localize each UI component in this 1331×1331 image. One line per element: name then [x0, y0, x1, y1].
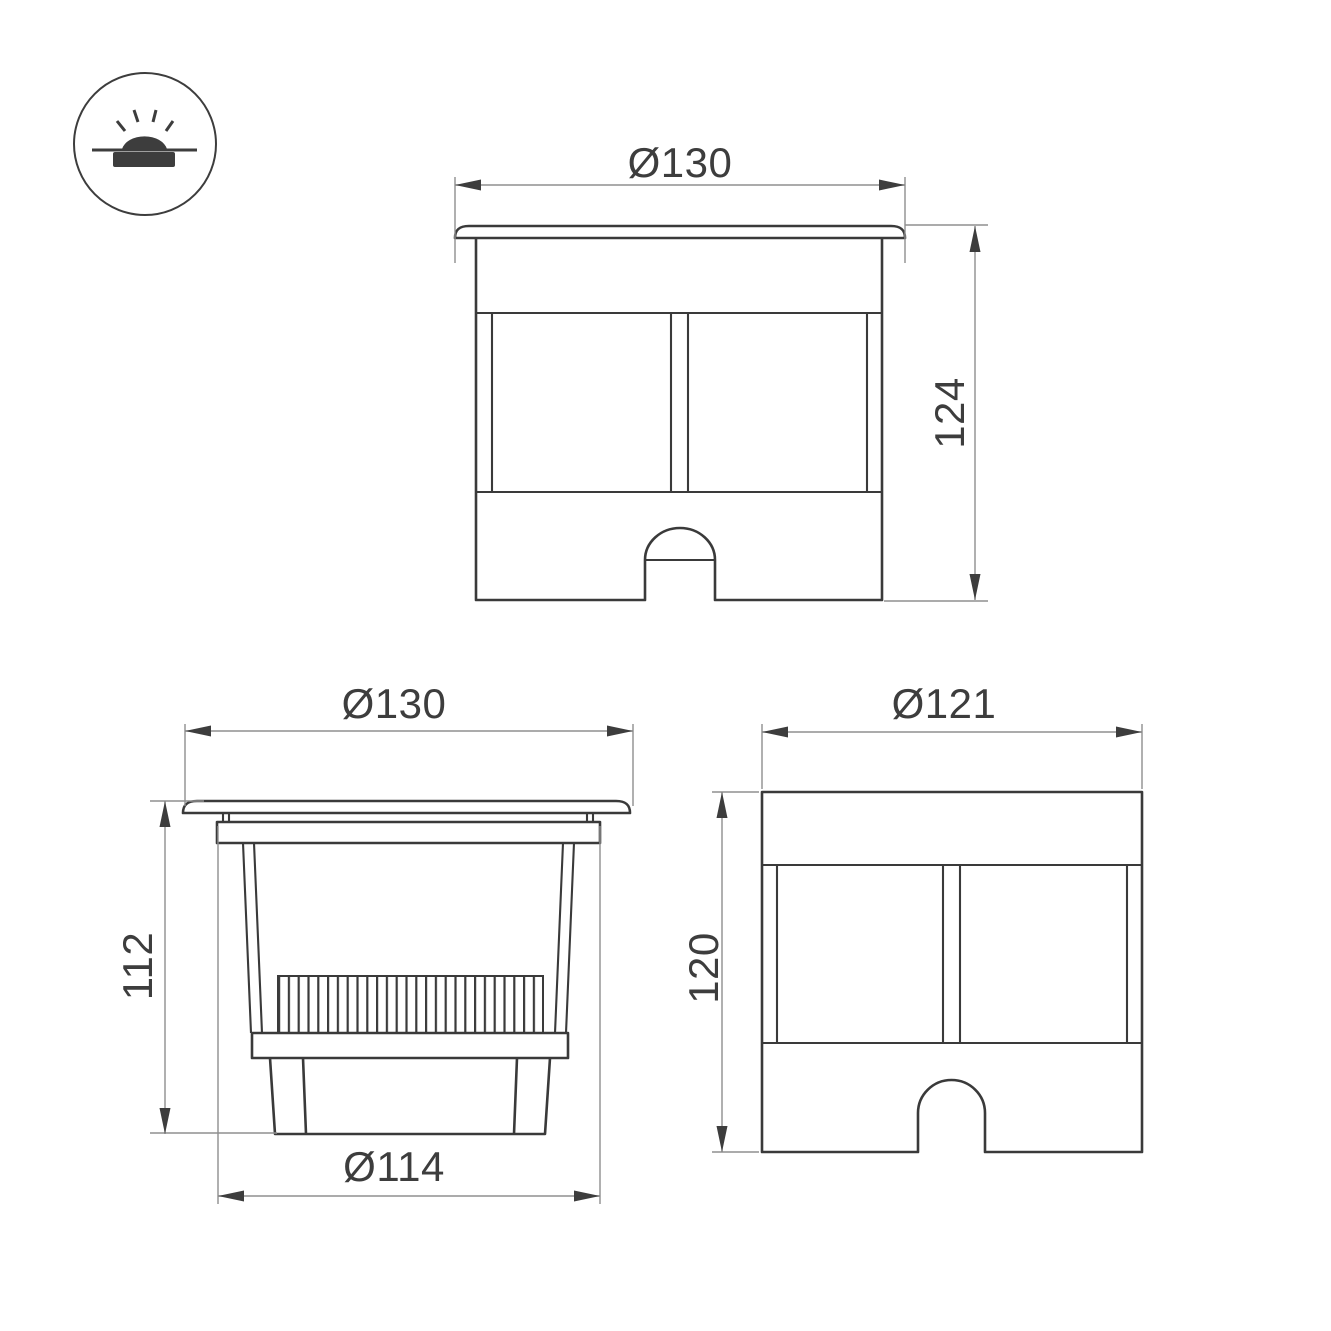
icon-light-dome [122, 136, 167, 149]
arrow-right-icon [607, 726, 633, 737]
arrow-up-icon [717, 792, 728, 818]
side-body-outline [762, 792, 1142, 1152]
front-flange [455, 226, 905, 238]
section-width-dimension-label: Ø130 [342, 680, 447, 727]
section-view [183, 801, 630, 1134]
side-width-dimension-lines [762, 724, 1142, 789]
section-base-dimension-label: Ø114 [343, 1143, 445, 1190]
technical-drawing-canvas: Ø130 124 Ø130 112 Ø114 [0, 0, 1331, 1331]
arrow-right-icon [879, 180, 905, 191]
arrow-left-icon [762, 727, 788, 738]
front-width-dimension: Ø130 [455, 139, 905, 263]
arrow-down-icon [160, 1108, 171, 1134]
arrow-right-icon [1116, 727, 1142, 738]
front-width-dimension-label: Ø130 [628, 139, 733, 186]
front-height-dimension: 124 [884, 225, 988, 601]
arrow-left-icon [455, 180, 481, 191]
section-base-housing [270, 1058, 550, 1134]
section-base-plate [252, 1033, 568, 1058]
front-height-dimension-label: 124 [926, 377, 973, 449]
side-height-dimension-label: 120 [680, 932, 727, 1004]
section-width-dimension-lines [185, 724, 633, 806]
recessed-light-icon [74, 73, 216, 215]
section-height-dimension: 112 [114, 801, 277, 1134]
section-flange [183, 801, 630, 813]
side-height-dimension: 120 [680, 792, 759, 1152]
drawing-page: Ø130 124 Ø130 112 Ø114 [0, 0, 1331, 1331]
section-heatsink-fins [278, 976, 543, 1033]
side-view [762, 792, 1142, 1152]
section-height-dimension-lines [150, 801, 277, 1134]
arrow-up-icon [970, 226, 981, 252]
front-view [455, 226, 905, 600]
arrow-up-icon [160, 801, 171, 827]
arrow-left-icon [218, 1191, 244, 1202]
side-body-details [762, 865, 1142, 1043]
arrow-down-icon [970, 574, 981, 600]
front-width-dimension-lines [455, 177, 905, 263]
icon-light-rays [117, 110, 173, 131]
section-height-dimension-label: 112 [114, 932, 161, 1000]
arrow-down-icon [717, 1126, 728, 1152]
arrow-left-icon [185, 726, 211, 737]
arrow-right-icon [574, 1191, 600, 1202]
section-collar [217, 822, 600, 843]
section-width-dimension: Ø130 [185, 680, 633, 806]
side-width-dimension-label: Ø121 [892, 680, 997, 727]
section-neck-lines [223, 813, 593, 822]
front-body-details [476, 313, 882, 560]
front-body-outline [476, 238, 882, 600]
icon-fixture-body [113, 152, 175, 167]
side-width-dimension: Ø121 [762, 680, 1142, 789]
